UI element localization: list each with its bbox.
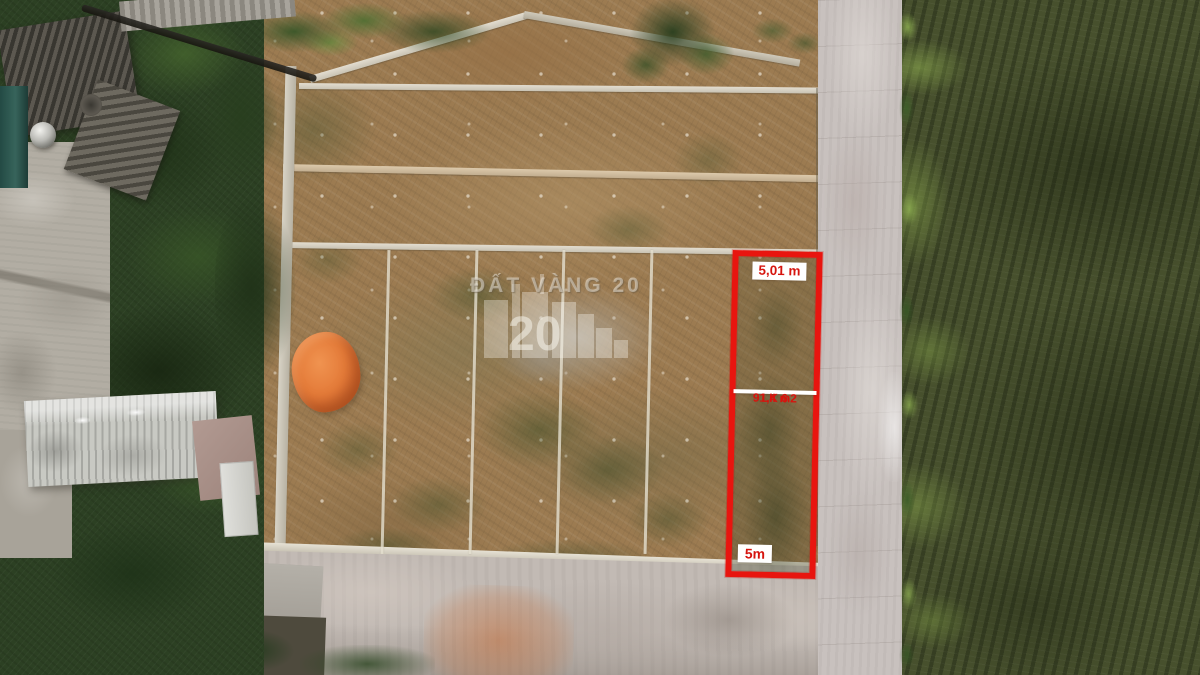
plot-width-bottom-label: 5m xyxy=(738,544,773,563)
plot-width-top-label: 5,01 m xyxy=(752,261,806,280)
plot-outline-lk6: 5,01 m LK 6 91,4 m2 5m xyxy=(725,250,822,579)
rice-paddy-edge-fringe xyxy=(894,0,922,675)
top-tree-center xyxy=(612,0,747,98)
white-metal-shed xyxy=(24,391,220,487)
vegetation-blob xyxy=(215,200,295,375)
small-white-structure xyxy=(219,461,258,537)
plot-lk6-interior xyxy=(731,256,816,573)
concrete-dark-blotch xyxy=(663,582,795,658)
teal-building xyxy=(0,86,28,188)
bottom-bushes xyxy=(300,645,435,675)
watermark-logo-digits: 20 xyxy=(508,308,561,360)
rust-stain xyxy=(422,583,575,675)
vegetation-blob xyxy=(205,55,277,180)
water-tank xyxy=(30,122,56,148)
round-well xyxy=(80,94,102,116)
watermark-text: ĐẤT VÀNG 20 xyxy=(470,274,642,298)
rice-paddy xyxy=(902,0,1200,675)
plot-area-text: 91,4 m2 xyxy=(753,392,797,407)
aerial-land-photo: 5,01 m LK 6 91,4 m2 5m 20 ĐẤT VÀNG 20 xyxy=(0,0,1200,675)
